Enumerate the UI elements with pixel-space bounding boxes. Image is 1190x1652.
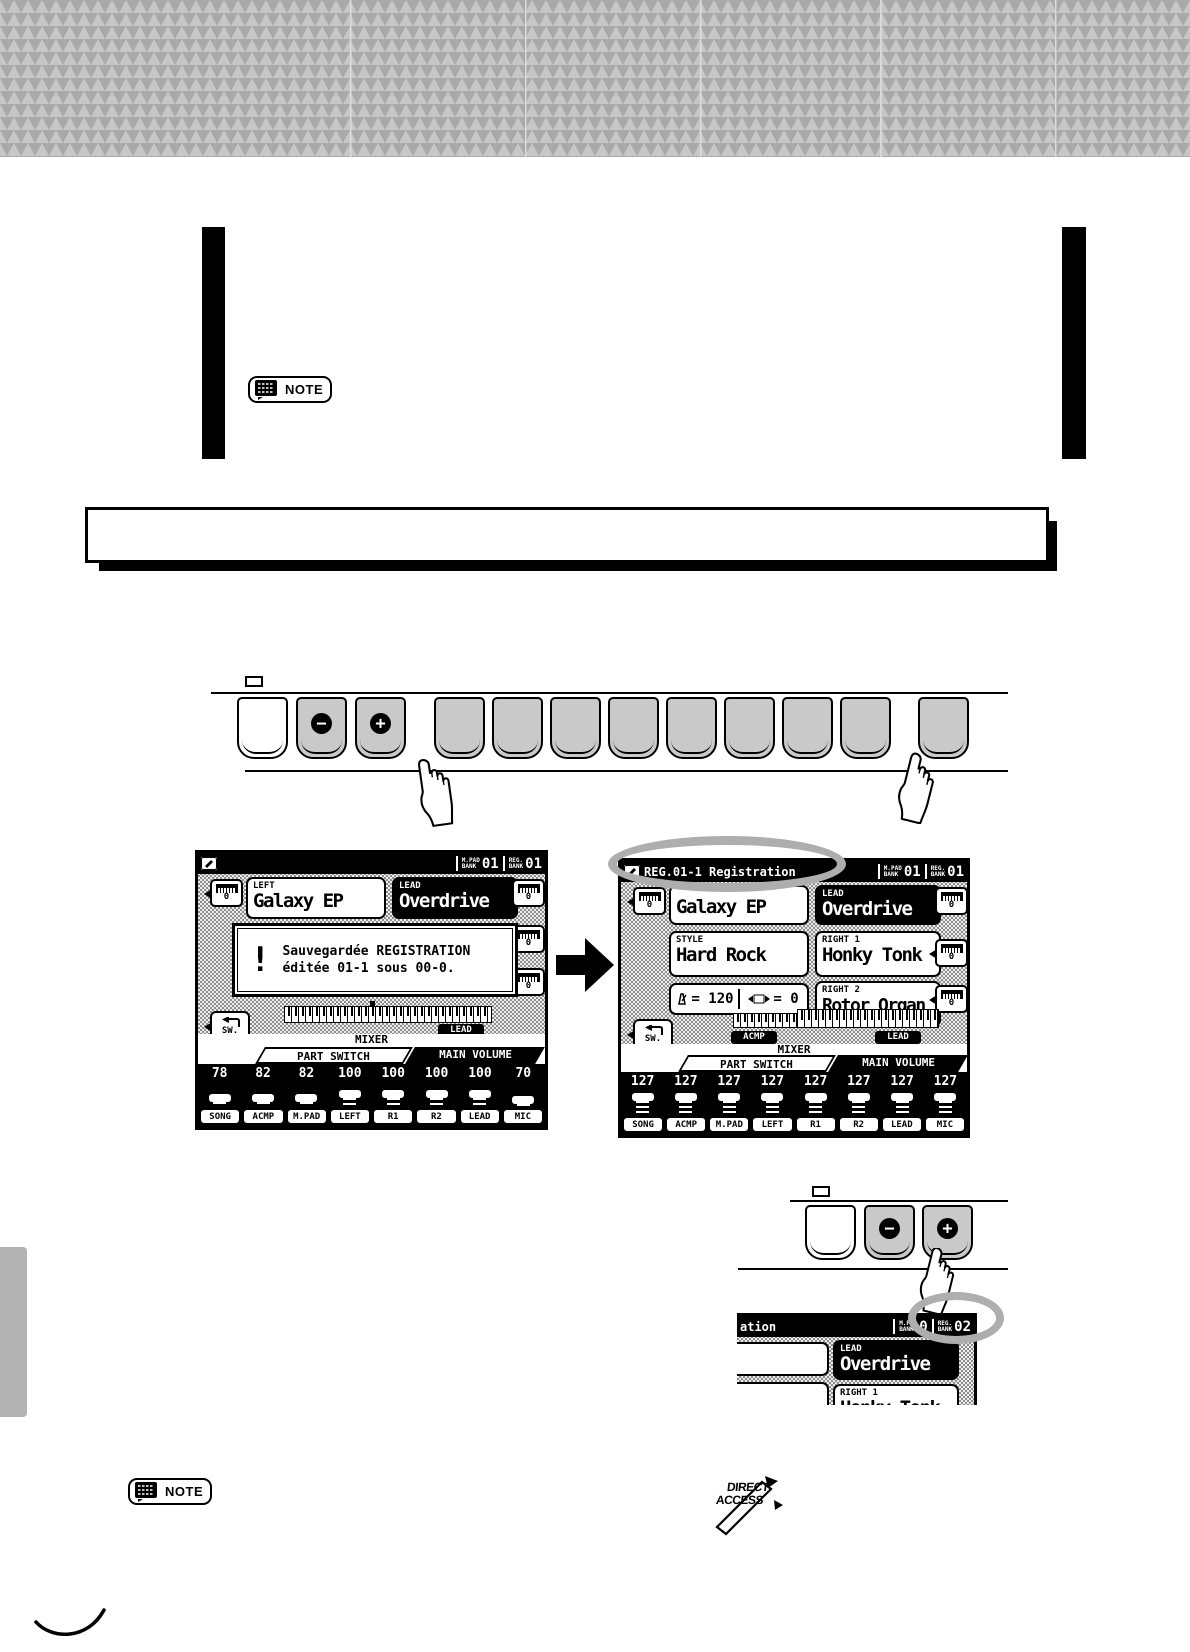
bank-plus-button: + [355, 697, 406, 759]
right2-label: RIGHT 2 [822, 985, 934, 995]
left-voice-value: Galaxy EP [676, 897, 802, 918]
registration-button-8 [840, 697, 891, 759]
registration-button-2 [492, 697, 543, 759]
volume-slider [241, 1085, 284, 1106]
lcd-screen-before: M.PADBANK 01 REG.BANK 01 0 LEFT Galaxy E… [195, 850, 548, 1130]
mpad-bank-indicator: M.PADBANK 01 [462, 856, 499, 872]
octave-keyboard-icon: 0 [210, 879, 243, 907]
volume-slider [328, 1085, 371, 1106]
registration-button-4 [608, 697, 659, 759]
registration-button-1 [434, 697, 485, 759]
octave-keyboard-icon: 0 [935, 985, 968, 1013]
lead-voice-box: LEAD Overdrive [392, 877, 518, 919]
reg-bank-number: 01 [947, 864, 964, 880]
save-message-box: ! Sauvegardée REGISTRATION éditée 01-1 s… [232, 923, 518, 997]
volume-slider [924, 1093, 967, 1114]
volume-slider [502, 1085, 545, 1106]
volume-slider [837, 1093, 880, 1114]
volume-slider [621, 1093, 664, 1114]
highlight-ring [608, 836, 846, 892]
divider [878, 864, 880, 879]
panel-top-line [211, 692, 1008, 694]
divider [503, 856, 505, 871]
tempo-value: = 120 [691, 991, 733, 1007]
divider [925, 864, 927, 879]
octave-keyboard-icon: 0 [633, 887, 666, 915]
left-margin-bar [202, 227, 225, 459]
right-margin-bar [1062, 227, 1086, 459]
panel-indicator-lamp [812, 1186, 830, 1197]
pointing-hand-icon [412, 756, 458, 828]
volume-slider [372, 1085, 415, 1106]
highlight-ring [908, 1292, 1004, 1344]
direct-label: DIRECT [727, 1480, 770, 1494]
bank-minus-button: − [296, 697, 347, 759]
exclamation-icon: ! [250, 940, 270, 980]
transpose-indicator: = 0 [740, 991, 807, 1007]
edit-page-icon [201, 857, 217, 870]
transpose-keyboard-icon [748, 994, 770, 1004]
mpad-bank-number: 01 [482, 856, 499, 872]
lead-keyboard-graphic [797, 1009, 939, 1028]
right1-voice-box: RIGHT 1 Honky Tonk [815, 931, 941, 977]
tempo-indicator: = 120 [671, 991, 738, 1007]
minus-icon: − [879, 1218, 900, 1239]
note-label: NOTE [165, 1484, 203, 1499]
mpad-bank-indicator: M.PADBANK 01 [884, 864, 921, 880]
left-voice-value: Galaxy EP [253, 891, 379, 912]
style-value: Hard Rock [676, 945, 802, 966]
plus-icon: + [370, 713, 391, 734]
divider [456, 856, 458, 871]
transpose-value: = 0 [773, 991, 798, 1007]
reg-bank-number: 01 [525, 856, 542, 872]
style-box-cut [737, 1382, 829, 1405]
lead-voice-value: Overdrive [840, 1354, 952, 1375]
direct-access-logo: DIRECT ACCESS [688, 1474, 783, 1536]
left-voice-box: LEFT Galaxy EP [246, 877, 386, 919]
right1-value: Honky Tonk [840, 1398, 952, 1405]
panel-indicator-lamp [245, 676, 263, 687]
tempo-transpose-box: = 120 = 0 [669, 983, 809, 1015]
lead-voice-value: Overdrive [822, 899, 934, 920]
right-arrow-icon [556, 938, 614, 992]
save-message-text: Sauvegardée REGISTRATION éditée 01-1 sou… [282, 943, 470, 977]
lcd-titlebar: M.PADBANK 01 REG.BANK 01 [198, 853, 545, 874]
volume-sliders [621, 1090, 967, 1116]
lead-voice-box: LEAD Overdrive [833, 1340, 959, 1380]
style-box: STYLE Hard Rock [669, 931, 809, 977]
octave-keyboard-icon: 0 [512, 879, 545, 907]
plus-icon: + [937, 1218, 958, 1239]
freeze-button [237, 697, 288, 759]
channel-labels-row: SONG ACMP M.PAD LEFT R1 R2 LEAD MIC [623, 1117, 965, 1132]
lead-voice-value: Overdrive [399, 891, 511, 912]
reg-bank-indicator: REG.BANK 01 [931, 864, 964, 880]
volume-slider [415, 1085, 458, 1106]
volume-sliders [198, 1082, 545, 1108]
volume-slider [751, 1093, 794, 1114]
octave-value: 0 [224, 893, 229, 902]
mixer-title: MIXER [198, 1033, 545, 1046]
lead-voice-box: LEAD Overdrive [815, 885, 941, 925]
exit-button [918, 697, 969, 759]
mixer-panel: 78 82 82 100 100 100 100 70 SONG [198, 1064, 545, 1127]
volume-slider [285, 1085, 328, 1106]
page-edge-tab [0, 1247, 27, 1417]
manual-page: NOTE − + [0, 0, 1190, 1652]
octave-keyboard-icon: 0 [935, 887, 968, 915]
triangle-pattern-banner [0, 0, 1190, 157]
registration-button-5 [666, 697, 717, 759]
volume-values-row: 127 127 127 127 127 127 127 127 [621, 1073, 967, 1090]
tab-main-volume: MAIN VOLUME [405, 1047, 545, 1064]
metronome-icon [675, 992, 688, 1006]
screen-title-fragment: ation [740, 1320, 776, 1334]
mpad-bank-number: 01 [904, 864, 921, 880]
volume-slider [664, 1093, 707, 1114]
speech-bubble-icon [254, 379, 278, 400]
lcd-screen-after: REG.01-1 Registration M.PADBANK 01 REG.B… [618, 858, 970, 1138]
registration-button-6 [724, 697, 775, 759]
section-heading-bar [85, 507, 1049, 563]
registration-button-7 [782, 697, 833, 759]
decorative-swoosh [30, 1592, 125, 1650]
reg-bank-indicator: REG.BANK 01 [509, 856, 542, 872]
minus-icon: − [311, 713, 332, 734]
pointing-hand-icon [893, 752, 939, 824]
keyboard-range-graphic [284, 1006, 492, 1023]
tab-part-switch: PART SWITCH [678, 1055, 836, 1072]
volume-values-row: 78 82 82 100 100 100 100 70 [198, 1065, 545, 1082]
volume-slider [708, 1093, 751, 1114]
note-icon: NOTE [128, 1478, 212, 1505]
acmp-keyboard-graphic [733, 1013, 797, 1028]
left-voice-box-cut [737, 1342, 829, 1376]
freeze-button [805, 1205, 856, 1260]
speech-bubble-icon [134, 1481, 158, 1502]
volume-slider [881, 1093, 924, 1114]
right1-value: Honky Tonk [822, 945, 934, 966]
panel-top-line [790, 1200, 1008, 1202]
volume-slider [458, 1085, 501, 1106]
tab-part-switch: PART SWITCH [255, 1047, 413, 1064]
volume-slider [794, 1093, 837, 1114]
volume-slider [198, 1085, 241, 1106]
access-label: ACCESS [715, 1493, 763, 1507]
bank-minus-button: − [864, 1205, 915, 1260]
right1-voice-box: RIGHT 1 Honky Tonk [833, 1384, 959, 1405]
channel-labels-row: SONG ACMP M.PAD LEFT R1 R2 LEAD MIC [200, 1109, 543, 1124]
divider [893, 1319, 895, 1334]
panel-bottom-line [738, 1268, 1008, 1270]
registration-button-3 [550, 697, 601, 759]
mixer-panel: 127 127 127 127 127 127 127 127 SONG [621, 1072, 967, 1135]
note-icon: NOTE [248, 376, 332, 403]
tab-main-volume: MAIN VOLUME [828, 1055, 968, 1072]
note-label: NOTE [285, 382, 323, 397]
octave-keyboard-icon: 0 [935, 939, 968, 967]
